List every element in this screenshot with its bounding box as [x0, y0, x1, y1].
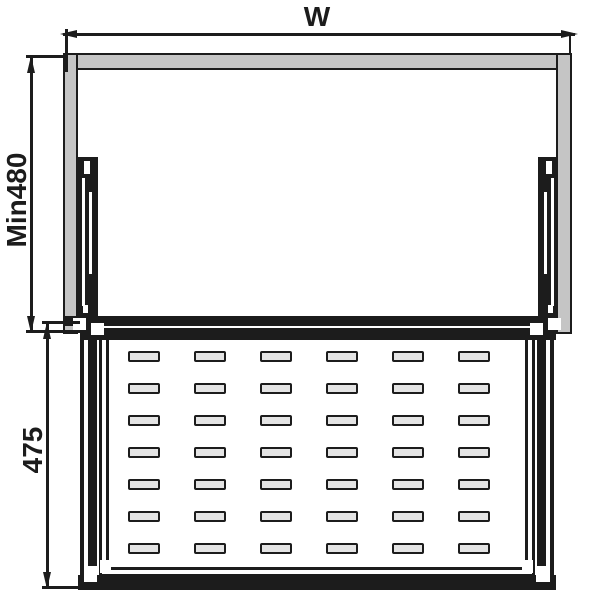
- joint-gap: [84, 566, 97, 582]
- basket-slot: [458, 447, 490, 458]
- basket-slot: [326, 415, 358, 426]
- dim-width-line: [63, 33, 575, 36]
- dim-minheight-label: Min480: [3, 153, 31, 248]
- basket-slot: [260, 383, 292, 394]
- right-rail-notch: [546, 161, 552, 174]
- basket-slot: [392, 351, 424, 362]
- cabinet-right-wall: [556, 53, 572, 334]
- basket-slot: [260, 511, 292, 522]
- basket-slot: [326, 511, 358, 522]
- basket-slot: [458, 543, 490, 554]
- basket-slot: [260, 543, 292, 554]
- basket-slot: [128, 415, 160, 426]
- basket-slot: [194, 351, 226, 362]
- basket-slot: [194, 479, 226, 490]
- dim-minheight-ext-bottom: [26, 330, 80, 333]
- basket-slot: [392, 383, 424, 394]
- basket-slot: [194, 383, 226, 394]
- dim-width-label: W: [304, 3, 330, 31]
- dim-basketheight-label: 475: [19, 427, 47, 474]
- cabinet-top-panel: [63, 53, 572, 70]
- basket-left-post: [88, 328, 97, 590]
- joint-gap: [73, 318, 86, 330]
- basket-slot: [128, 543, 160, 554]
- basket-right-outer-line: [550, 328, 554, 590]
- basket-left-outer-line: [80, 328, 84, 590]
- joint-gap: [548, 318, 561, 330]
- basket-top-rail: [80, 328, 556, 340]
- right-rail-slot-line: [544, 192, 547, 274]
- basket-slot: [326, 479, 358, 490]
- basket-slot: [458, 351, 490, 362]
- basket-slot: [458, 415, 490, 426]
- basket-slot: [458, 383, 490, 394]
- basket-slot: [194, 511, 226, 522]
- basket-slot: [326, 351, 358, 362]
- left-slide-rail: [78, 157, 98, 330]
- left-rail-slot-line: [89, 192, 92, 274]
- dim-minheight-ext-top: [26, 55, 68, 58]
- dim-basketheight-ext-top: [42, 321, 80, 324]
- basket-slot: [392, 447, 424, 458]
- right-rail-pin: [548, 305, 553, 313]
- left-rail-slot-line: [82, 178, 85, 306]
- basket-slot: [128, 447, 160, 458]
- cabinet-bottom-edge: [63, 316, 556, 326]
- basket-slot: [326, 543, 358, 554]
- joint-gap: [536, 566, 550, 582]
- dim-width-ext-right: [569, 33, 571, 54]
- basket-bottom-rail: [78, 575, 556, 590]
- joint-gap: [91, 323, 104, 335]
- basket-slot: [194, 543, 226, 554]
- left-rail-notch: [84, 161, 90, 174]
- right-rail-slot-line: [551, 178, 554, 306]
- basket-slot: [260, 415, 292, 426]
- dim-basketheight-arrow-top: [43, 322, 51, 339]
- basket-slot: [392, 511, 424, 522]
- dim-minheight-arrow-top: [27, 56, 35, 73]
- basket-slot: [194, 447, 226, 458]
- basket-slot: [128, 479, 160, 490]
- basket-slot: [128, 383, 160, 394]
- basket-slot: [392, 543, 424, 554]
- basket-slot: [458, 511, 490, 522]
- basket-slot: [458, 479, 490, 490]
- basket-slot: [392, 479, 424, 490]
- joint-gap: [530, 323, 543, 335]
- drawing-canvas: W Min480 475: [0, 0, 600, 600]
- joint-gap: [522, 560, 533, 573]
- basket-right-post: [537, 328, 546, 590]
- basket-slot: [194, 415, 226, 426]
- dim-basketheight-ext-bottom: [42, 586, 80, 589]
- dim-width-arrow-left: [60, 30, 77, 38]
- joint-gap: [100, 560, 111, 573]
- basket-slot: [260, 447, 292, 458]
- basket-slot: [260, 479, 292, 490]
- slot-grid: [128, 351, 490, 554]
- dim-width-ext-left: [65, 29, 68, 72]
- basket-slot: [326, 383, 358, 394]
- basket-slot: [128, 351, 160, 362]
- basket-slot: [260, 351, 292, 362]
- left-rail-pin: [83, 305, 88, 313]
- basket-slot: [326, 447, 358, 458]
- cabinet-left-wall: [63, 53, 78, 334]
- basket-slot: [128, 511, 160, 522]
- basket-slot: [392, 415, 424, 426]
